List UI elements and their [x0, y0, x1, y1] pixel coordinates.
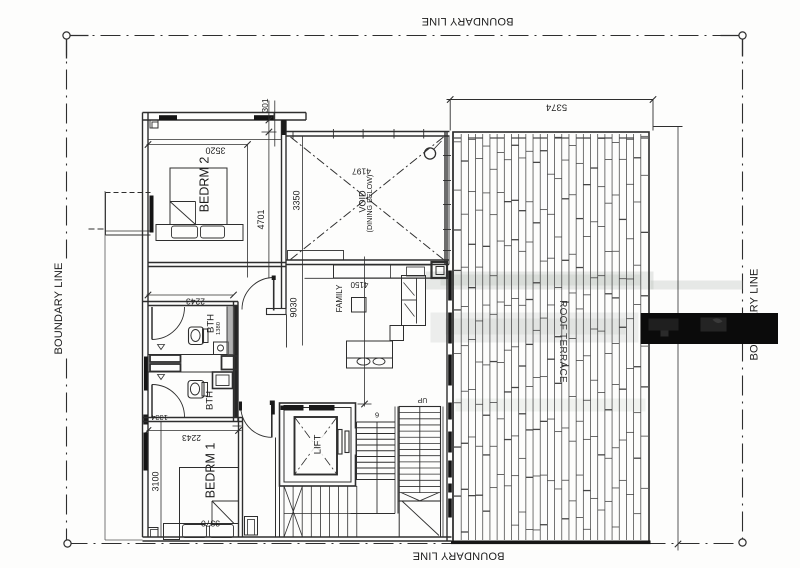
svg-text:UP: UP: [417, 396, 427, 403]
svg-text:BEDRM 1: BEDRM 1: [203, 443, 217, 499]
svg-text:BTH: BTH: [206, 314, 217, 333]
svg-text:LIFT: LIFT: [313, 435, 324, 455]
svg-text:BOUNDARY LINE: BOUNDARY LINE: [421, 15, 513, 27]
svg-text:6: 6: [375, 411, 379, 420]
svg-text:4150: 4150: [350, 280, 368, 289]
svg-text:2243: 2243: [186, 296, 205, 306]
svg-text:3100: 3100: [150, 471, 160, 491]
svg-text:4197: 4197: [352, 166, 371, 176]
svg-text:BOUNDARY LINE: BOUNDARY LINE: [53, 262, 65, 354]
svg-text:4701: 4701: [256, 209, 266, 229]
svg-text:FAMILY: FAMILY: [335, 284, 344, 313]
svg-text:BOUNDARY LINE: BOUNDARY LINE: [412, 550, 504, 562]
svg-text:1380: 1380: [216, 322, 222, 335]
svg-text:1334: 1334: [151, 413, 168, 422]
svg-text:BTH: BTH: [205, 391, 216, 410]
svg-text:2243: 2243: [182, 433, 201, 443]
svg-text:3520: 3520: [205, 146, 225, 156]
svg-text:301: 301: [260, 98, 270, 112]
svg-text:3350: 3350: [291, 190, 301, 210]
svg-text:ROOF TERRACE: ROOF TERRACE: [557, 300, 568, 383]
svg-text:3370: 3370: [201, 518, 220, 528]
svg-text:BEDRM 2: BEDRM 2: [197, 157, 211, 213]
svg-text:9030: 9030: [288, 297, 298, 317]
svg-text:(DINING BELOW): (DINING BELOW): [365, 175, 374, 233]
svg-text:5374: 5374: [546, 101, 567, 112]
